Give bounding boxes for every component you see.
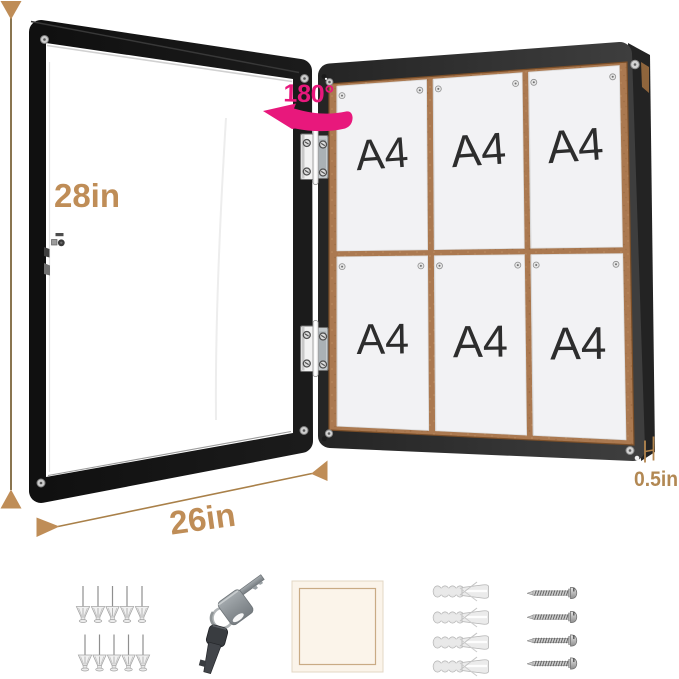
- svg-text:A4: A4: [545, 117, 605, 173]
- svg-text:0.5in: 0.5in: [634, 468, 678, 491]
- svg-text:A4: A4: [356, 315, 409, 364]
- svg-text:A4: A4: [550, 317, 607, 370]
- svg-text:A4: A4: [452, 316, 508, 368]
- svg-text:180°: 180°: [283, 79, 334, 108]
- svg-text:A4: A4: [449, 122, 508, 177]
- svg-text:A4: A4: [354, 129, 410, 181]
- svg-text:28in: 28in: [54, 177, 120, 214]
